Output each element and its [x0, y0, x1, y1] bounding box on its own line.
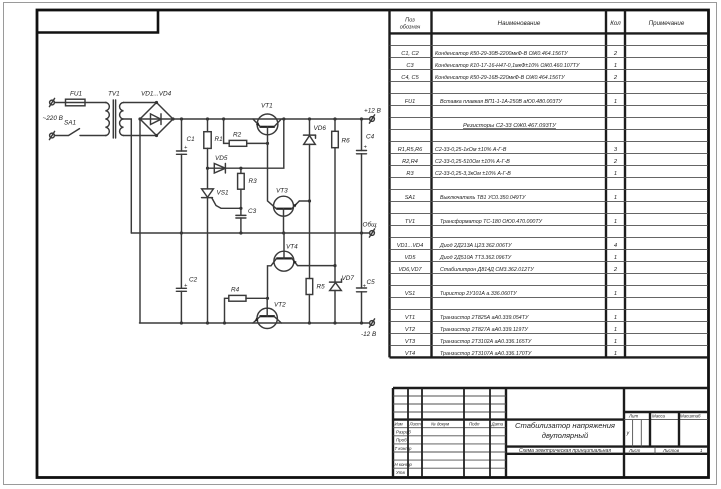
- svg-text:1: 1: [614, 351, 617, 357]
- svg-text:VD1...VD4: VD1...VD4: [141, 91, 172, 98]
- svg-text:C4: C4: [366, 134, 375, 141]
- svg-text:FU1: FU1: [70, 91, 83, 98]
- svg-text:VT1: VT1: [261, 103, 273, 110]
- svg-text:VS1: VS1: [217, 190, 230, 197]
- svg-text:Транзистор 2Т827А аА0.339.: Транзистор 2Т827А аА0.339.119ТУ: [440, 327, 529, 333]
- svg-text:Конденсатор К10-17-16-Н47-0,1: Конденсатор К10-17-16-Н47-0,1мкФ±10% ОЖ0…: [435, 63, 580, 69]
- svg-text:Кол: Кол: [610, 20, 621, 27]
- svg-text:Диод 2Д213А Ц23.362.006ТУ: Диод 2Д213А Ц23.362.006ТУ: [439, 243, 512, 249]
- svg-text:4: 4: [614, 243, 617, 249]
- svg-text:Масса: Масса: [652, 413, 666, 418]
- svg-text:VD1...VD4: VD1...VD4: [397, 243, 423, 249]
- svg-text:R1,R5,R6: R1,R5,R6: [398, 147, 423, 153]
- svg-text:Лист: Лист: [628, 448, 641, 453]
- svg-text:C1: C1: [187, 136, 196, 143]
- svg-text:R3: R3: [406, 171, 414, 177]
- svg-text:1: 1: [614, 327, 617, 333]
- svg-text:1: 1: [614, 171, 617, 177]
- svg-text:C2: C2: [189, 277, 198, 284]
- svg-text:R3: R3: [249, 178, 258, 185]
- svg-text:VT3: VT3: [405, 339, 416, 345]
- svg-text:SA1: SA1: [64, 120, 77, 127]
- svg-text:Конденсатор К50-29-30В-2200мк: Конденсатор К50-29-30В-2200мкФ-В ОЖ0.464…: [435, 51, 568, 57]
- svg-text:Вставка плавкая ВП1-1-1А-250: Вставка плавкая ВП1-1-1А-250В аЮ0.480.00…: [440, 99, 563, 105]
- svg-text:Поз: Поз: [405, 18, 415, 24]
- svg-text:Диод 2Д510А ТТ3.362.096ТУ: Диод 2Д510А ТТ3.362.096ТУ: [439, 255, 512, 261]
- svg-text:двуполярный: двуполярный: [542, 431, 589, 440]
- svg-text:Общ: Общ: [363, 221, 378, 229]
- svg-text:R5: R5: [317, 284, 326, 291]
- svg-text:VD5: VD5: [405, 255, 417, 261]
- svg-text:R1: R1: [215, 136, 224, 143]
- svg-text:Подп: Подп: [469, 422, 480, 427]
- svg-text:Наименование: Наименование: [498, 20, 541, 27]
- svg-text:Утв: Утв: [396, 470, 405, 475]
- svg-text:Дата: Дата: [491, 422, 504, 427]
- svg-text:1: 1: [614, 315, 617, 321]
- svg-text:Трансформатор ТС-180 ОЮ0.4: Трансформатор ТС-180 ОЮ0.470.000ТУ: [440, 219, 543, 225]
- svg-text:R2,R4: R2,R4: [402, 159, 418, 165]
- svg-text:TV1: TV1: [405, 219, 415, 225]
- svg-text:Стабилизатор напряжения: Стабилизатор напряжения: [515, 421, 615, 430]
- svg-text:1: 1: [614, 195, 617, 201]
- svg-text:VT2: VT2: [405, 327, 416, 333]
- svg-text:C3: C3: [248, 208, 257, 215]
- svg-text:Изм: Изм: [395, 422, 403, 427]
- svg-text:Транзистор 2Т3107А аА0.336: Транзистор 2Т3107А аА0.336.170ТУ: [440, 351, 532, 357]
- svg-text:Транзистор 2Т825А аА0.339.: Транзистор 2Т825А аА0.339.054ТУ: [440, 315, 529, 321]
- svg-text:VD5: VD5: [215, 155, 228, 162]
- svg-text:Тиристор 2У101А а.336.060Т: Тиристор 2У101А а.336.060ТУ: [440, 291, 517, 297]
- svg-text:VD6: VD6: [314, 125, 327, 132]
- svg-text:R6: R6: [342, 138, 351, 145]
- svg-text:R4: R4: [231, 287, 240, 294]
- svg-text:Масштаб: Масштаб: [680, 413, 701, 418]
- svg-text:С2-33-0,25-3,3кОм ±10% А-Г-В: С2-33-0,25-3,3кОм ±10% А-Г-В: [435, 171, 511, 177]
- svg-text:1: 1: [614, 219, 617, 225]
- svg-text:VD6,VD7: VD6,VD7: [398, 267, 422, 273]
- svg-text:Разраб: Разраб: [396, 430, 411, 435]
- svg-text:1: 1: [614, 255, 617, 261]
- svg-text:Резисторы С2-33 ОЖ0.467.09: Резисторы С2-33 ОЖ0.467.093ТУ: [463, 123, 557, 129]
- svg-text:С2-33-0,25-510Ом ±10% А-Г-В: С2-33-0,25-510Ом ±10% А-Г-В: [435, 159, 510, 165]
- svg-text:SA1: SA1: [405, 195, 416, 201]
- svg-text:TV1: TV1: [108, 91, 120, 98]
- svg-text:Лит: Лит: [628, 413, 638, 418]
- svg-text:Н контр: Н контр: [395, 462, 413, 467]
- svg-text:VT3: VT3: [276, 188, 288, 195]
- svg-text:C3: C3: [406, 63, 414, 69]
- svg-text:FU1: FU1: [405, 99, 416, 105]
- svg-text:~220 В: ~220 В: [43, 115, 64, 122]
- svg-text:R2: R2: [233, 132, 242, 139]
- svg-text:Примечание: Примечание: [649, 20, 685, 27]
- svg-text:VS1: VS1: [405, 291, 416, 297]
- svg-text:Лист: Лист: [409, 422, 422, 427]
- svg-text:C1, C2: C1, C2: [401, 51, 419, 57]
- svg-text:Стабилитрон Д814Д СМ3.362.: Стабилитрон Д814Д СМ3.362.012ТУ: [440, 267, 534, 273]
- svg-text:VT4: VT4: [286, 244, 298, 251]
- svg-text:обознач: обознач: [400, 25, 421, 31]
- svg-text:№ докум: № докум: [431, 422, 449, 427]
- svg-text:Выключатель ТВ1 УС0.350.04: Выключатель ТВ1 УС0.350.049ТУ: [440, 195, 526, 201]
- svg-text:С2-33-0,25-1кОм ±10% А-Г-В: С2-33-0,25-1кОм ±10% А-Г-В: [435, 147, 507, 153]
- svg-text:VD7: VD7: [342, 275, 355, 282]
- svg-text:1: 1: [614, 99, 617, 105]
- svg-text:Листов: Листов: [662, 448, 680, 453]
- svg-text:Конденсатор К50-29-16В-220мкФ: Конденсатор К50-29-16В-220мкФ-В ОЖ0.464.…: [435, 75, 565, 81]
- svg-text:Проб: Проб: [396, 438, 407, 443]
- svg-text:C5: C5: [367, 279, 376, 286]
- svg-text:1: 1: [614, 63, 617, 69]
- svg-text:C4, C5: C4, C5: [401, 75, 419, 81]
- svg-text:Схема электрическая принципи: Схема электрическая принципиальная: [519, 448, 611, 454]
- svg-text:-12 В: -12 В: [361, 331, 377, 338]
- svg-text:VT1: VT1: [405, 315, 415, 321]
- svg-text:VT2: VT2: [274, 302, 286, 309]
- svg-text:VT4: VT4: [405, 351, 415, 357]
- svg-text:Т контр: Т контр: [395, 446, 412, 451]
- svg-text:1: 1: [614, 291, 617, 297]
- svg-text:Транзистор 2Т3102А аА0.336: Транзистор 2Т3102А аА0.336.165ТУ: [440, 339, 532, 345]
- svg-text:+12 В: +12 В: [364, 108, 382, 115]
- svg-text:1: 1: [614, 339, 617, 345]
